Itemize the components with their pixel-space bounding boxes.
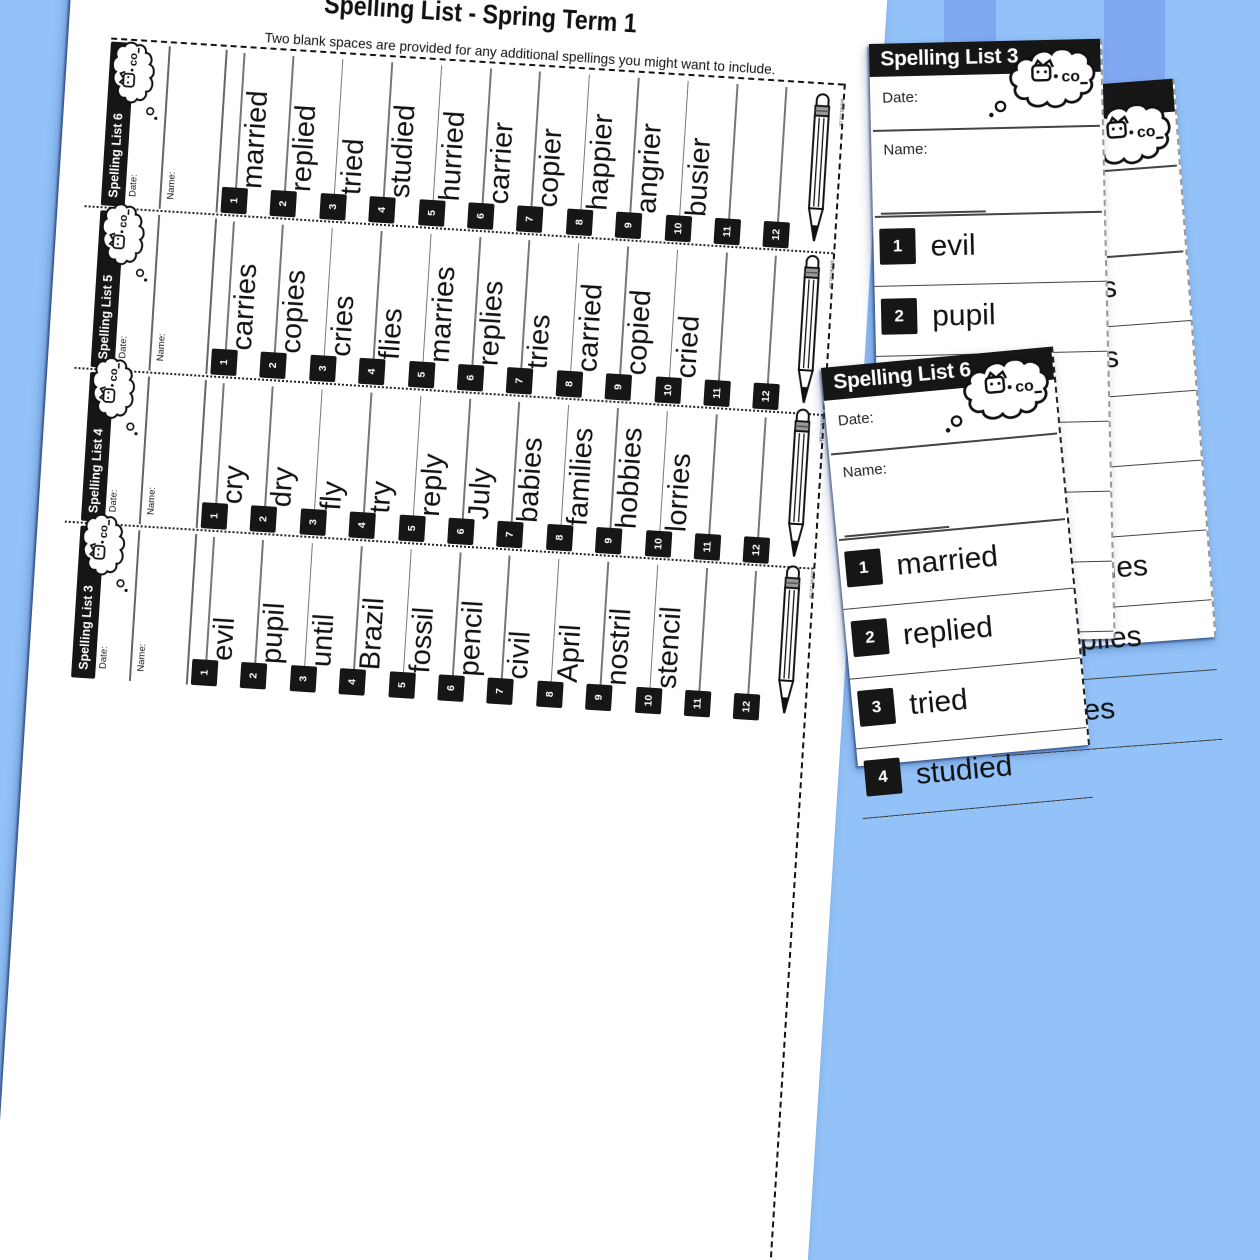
svg-text:co: co — [1061, 68, 1080, 85]
svg-text:co: co — [117, 214, 130, 228]
svg-text:co: co — [1136, 123, 1156, 141]
svg-text:co: co — [108, 368, 121, 382]
svg-text:co: co — [1015, 377, 1035, 396]
svg-text:co: co — [98, 525, 111, 539]
svg-text:co: co — [127, 52, 140, 66]
